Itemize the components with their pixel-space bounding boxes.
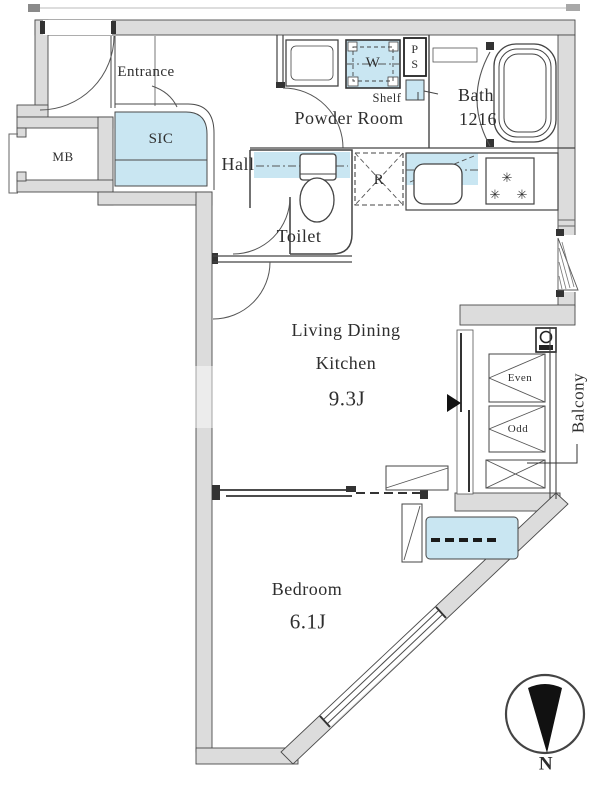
pipe-space-label: P S xyxy=(411,42,418,72)
balcony xyxy=(447,327,577,499)
shutter-box-lower xyxy=(486,460,545,488)
toilet-fixture xyxy=(300,154,336,222)
hall-label: Hall xyxy=(222,155,255,175)
front-door xyxy=(40,20,116,110)
compass xyxy=(506,675,584,753)
washer-label: W xyxy=(366,55,381,72)
compass-north-label: N xyxy=(539,755,553,776)
stove-burner-icon: ✳ xyxy=(490,187,501,202)
shelf-box xyxy=(406,80,424,100)
front-door-swing-arc xyxy=(40,36,114,110)
shutter-odd-label: Odd xyxy=(508,423,528,435)
powder-room-label: Powder Room xyxy=(295,109,404,129)
diagonal-window xyxy=(320,607,446,727)
closet-door-panel xyxy=(402,504,422,562)
ldk-door-swing-arc xyxy=(213,262,270,319)
stove-burner-icon: ✳ xyxy=(517,187,528,202)
stove-burner-icon: ✳ xyxy=(502,170,513,185)
sic-label: SIC xyxy=(149,131,174,148)
toilet-label: Toilet xyxy=(277,227,322,247)
shutter-even-label: Even xyxy=(508,372,533,384)
refrigerator-label: R xyxy=(374,172,385,189)
watermark-smudge xyxy=(96,366,214,428)
wall-mb-bottom xyxy=(17,180,113,192)
frame-remnants xyxy=(28,4,580,12)
ldk-label-line1: Living Dining xyxy=(292,321,401,341)
bedroom-size-label: 6.1J xyxy=(290,610,326,633)
wall-right-jut xyxy=(460,305,575,325)
bath-size-label: 1216 xyxy=(459,110,497,130)
ldk-label-line2: Kitchen xyxy=(316,354,376,374)
door-pocket xyxy=(386,466,448,490)
wall-mb-stub-top xyxy=(17,128,26,137)
kitchen-sink xyxy=(414,164,462,204)
water-heater xyxy=(536,328,556,352)
ldk-size-label: 9.3J xyxy=(329,387,365,410)
entrance-label: Entrance xyxy=(117,64,174,81)
bedroom-label: Bedroom xyxy=(272,580,343,600)
floor-plan: ✳ ✳ ✳ xyxy=(0,0,600,800)
sic-floor xyxy=(115,112,207,186)
wall-left-jog xyxy=(17,105,48,117)
wall-mb-stub-bottom xyxy=(17,172,26,181)
shelf-label: Shelf xyxy=(373,92,402,106)
bath-label: Bath xyxy=(458,86,494,106)
sliding-partition xyxy=(212,466,448,562)
wall-hall-jog xyxy=(98,192,212,205)
mb-label: MB xyxy=(52,150,73,164)
bedroom-closet xyxy=(426,517,518,559)
bathtub xyxy=(494,44,556,142)
balcony-label: Balcony xyxy=(570,373,589,433)
wall-left-main xyxy=(196,192,212,752)
ldk-entry-door xyxy=(212,253,352,319)
vanity-sink xyxy=(286,40,338,86)
stove: ✳ ✳ ✳ xyxy=(486,158,534,204)
balcony-window-frame xyxy=(457,330,473,494)
bath-counter xyxy=(433,48,477,62)
